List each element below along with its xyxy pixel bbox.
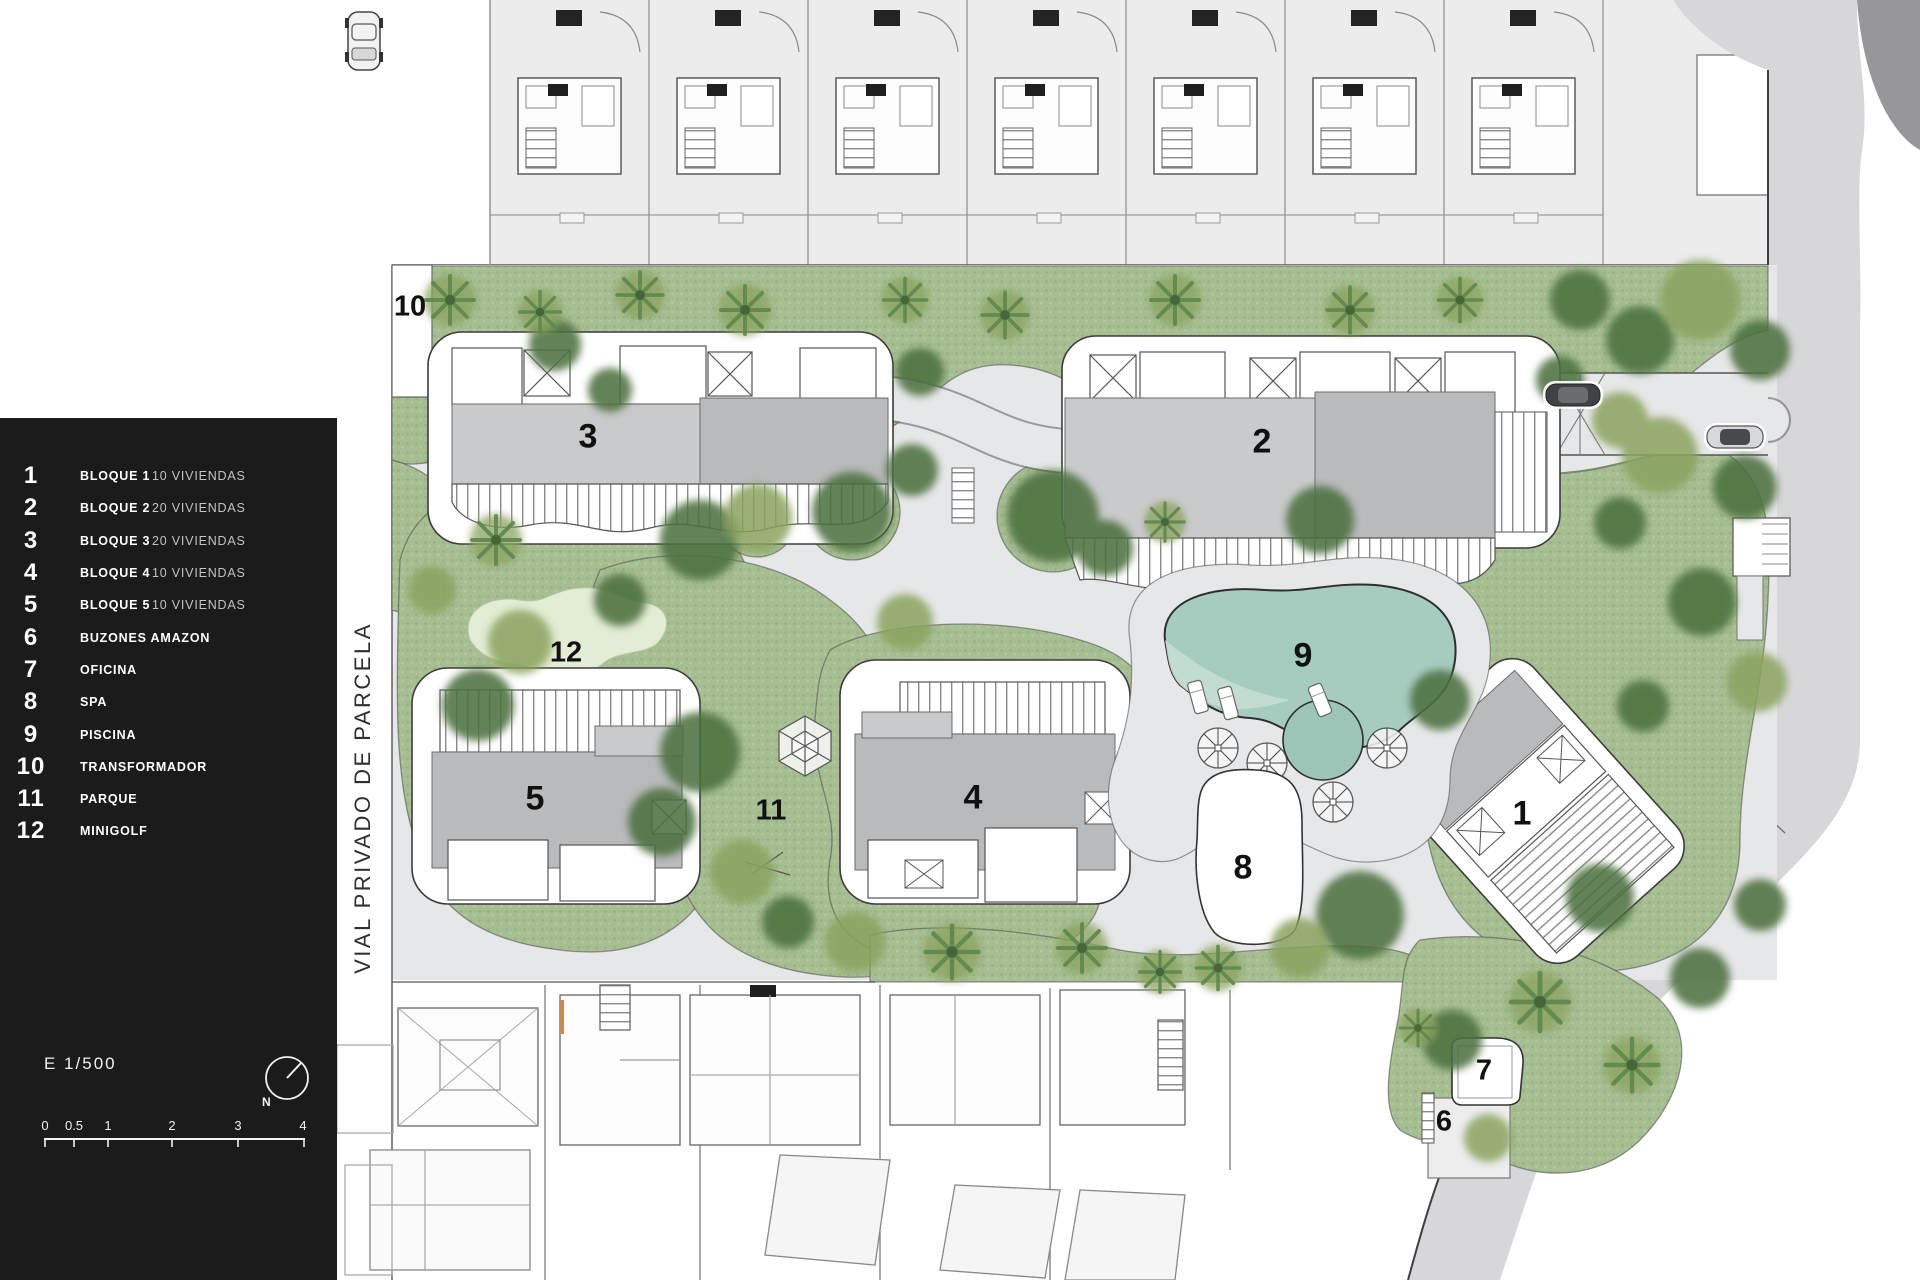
legend-detail: 10 VIVIENDAS — [152, 598, 246, 612]
street-name-vertical: VIAL PRIVADO DE PARCELA — [334, 555, 392, 1040]
legend-label: BLOQUE 2 — [80, 501, 150, 515]
legend-detail: 20 VIVIENDAS — [152, 501, 246, 515]
legend-num: 12 — [0, 817, 62, 845]
umbrella-icon — [1313, 782, 1353, 822]
legend-row: 12MINIGOLF — [0, 815, 337, 847]
north-compass-icon: N — [255, 1051, 317, 1113]
umbrella-icon — [1367, 728, 1407, 768]
scale-tick: 1 — [104, 1118, 111, 1133]
spa-building — [1196, 770, 1303, 945]
building-2 — [1062, 336, 1560, 592]
north-houses-strip — [392, 0, 1795, 265]
amazon-mailboxes — [1422, 1093, 1434, 1143]
building-4 — [840, 660, 1130, 904]
legend-label: SPA — [80, 695, 107, 709]
scale-text: E 1/500 — [44, 1054, 117, 1074]
parking-pad — [1733, 518, 1790, 576]
legend-label: PISCINA — [80, 728, 136, 742]
scale-bar — [0, 1136, 337, 1152]
legend-detail: 20 VIVIENDAS — [152, 534, 246, 548]
legend-row: 7OFICINA — [0, 654, 337, 686]
street-name-text: VIAL PRIVADO DE PARCELA — [350, 622, 376, 974]
scale-tick: 4 — [299, 1118, 306, 1133]
legend-row: 9PISCINA — [0, 718, 337, 750]
transformer-area — [392, 265, 432, 397]
legend-num: 4 — [0, 559, 62, 587]
legend-row: 10TRANSFORMADOR — [0, 751, 337, 783]
legend-num: 1 — [0, 462, 62, 490]
legend-num: 10 — [0, 753, 62, 781]
legend-label: BUZONES AMAZON — [80, 631, 210, 645]
legend-row: 6BUZONES AMAZON — [0, 621, 337, 653]
garden-stair — [952, 468, 974, 523]
legend-detail: 10 VIVIENDAS — [152, 566, 246, 580]
legend-row: 3BLOQUE 320 VIVIENDAS — [0, 525, 337, 557]
scale-tick: 3 — [234, 1118, 241, 1133]
legend-num: 6 — [0, 624, 62, 652]
legend-detail: 10 VIVIENDAS — [152, 469, 246, 483]
legend-num: 7 — [0, 656, 62, 684]
legend-num: 8 — [0, 688, 62, 716]
scale-tick: 2 — [168, 1118, 175, 1133]
legend-row: 11PARQUE — [0, 783, 337, 815]
car-top-left — [345, 12, 383, 70]
scale-bar-ticks: 0 0.5 1 2 3 4 — [0, 1118, 337, 1134]
legend-label: TRANSFORMADOR — [80, 760, 207, 774]
legend-label: BLOQUE 4 — [80, 566, 150, 580]
legend-num: 5 — [0, 591, 62, 619]
legend-label: BLOQUE 3 — [80, 534, 150, 548]
car-silver — [1704, 423, 1766, 451]
legend-num: 9 — [0, 721, 62, 749]
scale-tick: 0 — [41, 1118, 48, 1133]
legend-row: 8SPA — [0, 686, 337, 718]
scale-tick: 0.5 — [65, 1118, 83, 1133]
legend-num: 2 — [0, 494, 62, 522]
legend-panel: 1BLOQUE 110 VIVIENDAS 2BLOQUE 220 VIVIEN… — [0, 418, 337, 1280]
legend-row: 4BLOQUE 410 VIVIENDAS — [0, 557, 337, 589]
north-label: N — [262, 1095, 271, 1109]
legend-num: 3 — [0, 527, 62, 555]
legend-row: 2BLOQUE 220 VIVIENDAS — [0, 492, 337, 524]
umbrella-icon — [1198, 728, 1238, 768]
legend-items: 1BLOQUE 110 VIVIENDAS 2BLOQUE 220 VIVIEN… — [0, 460, 337, 848]
car-dark — [1543, 381, 1603, 409]
legend-row: 5BLOQUE 510 VIVIENDAS — [0, 589, 337, 621]
legend-label: BLOQUE 5 — [80, 598, 150, 612]
legend-label: BLOQUE 1 — [80, 469, 150, 483]
legend-label: PARQUE — [80, 792, 137, 806]
legend-num: 11 — [0, 785, 62, 813]
legend-label: OFICINA — [80, 663, 137, 677]
site-plan-canvas: 1 2 3 4 5 6 7 8 9 10 11 12 VIAL PRIVADO … — [0, 0, 1920, 1280]
legend-row: 1BLOQUE 110 VIVIENDAS — [0, 460, 337, 492]
legend-label: MINIGOLF — [80, 824, 148, 838]
